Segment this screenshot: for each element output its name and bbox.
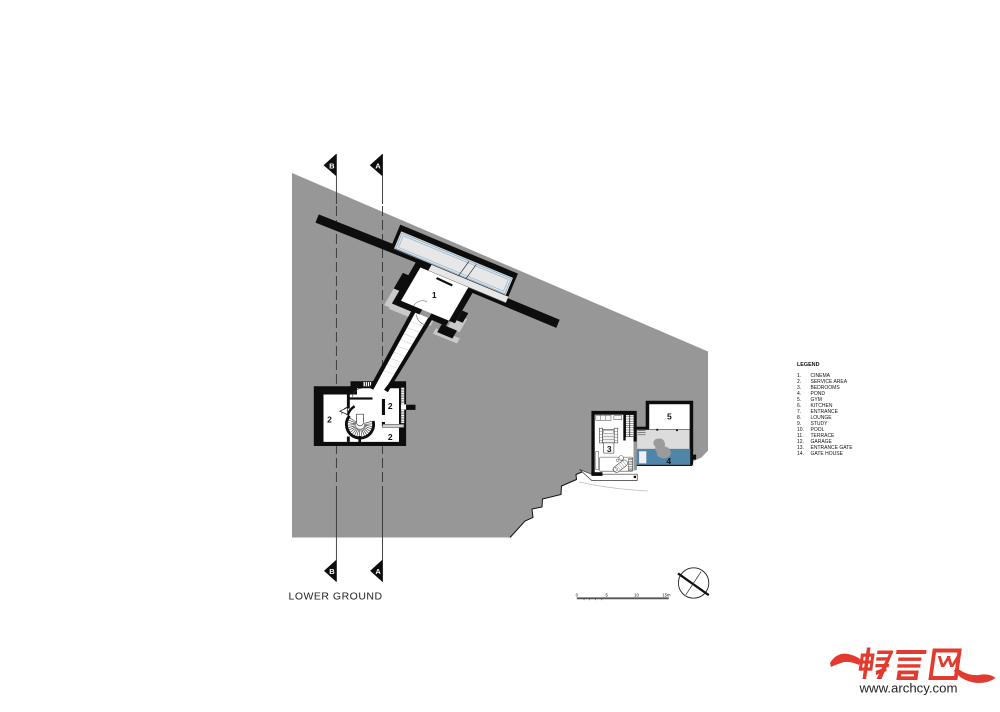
svg-text:5: 5 xyxy=(667,412,672,422)
svg-text:2: 2 xyxy=(388,401,393,411)
svg-text:A: A xyxy=(375,161,381,170)
svg-text:GATE HOUSE: GATE HOUSE xyxy=(811,451,844,457)
svg-text:www.archcy.com: www.archcy.com xyxy=(859,681,958,696)
svg-text:A: A xyxy=(375,567,381,576)
svg-text:14.: 14. xyxy=(797,451,804,457)
svg-text:15m: 15m xyxy=(662,592,671,597)
svg-text:2: 2 xyxy=(388,432,393,442)
svg-text:LEGEND: LEGEND xyxy=(797,362,820,368)
svg-text:2: 2 xyxy=(327,415,332,425)
svg-text:10: 10 xyxy=(634,592,639,597)
svg-text:1: 1 xyxy=(432,290,437,300)
svg-text:3: 3 xyxy=(607,444,612,454)
svg-text:4: 4 xyxy=(666,456,671,466)
svg-text:LOWER GROUND: LOWER GROUND xyxy=(289,591,383,603)
svg-text:B: B xyxy=(329,161,335,170)
svg-text:B: B xyxy=(329,567,335,576)
